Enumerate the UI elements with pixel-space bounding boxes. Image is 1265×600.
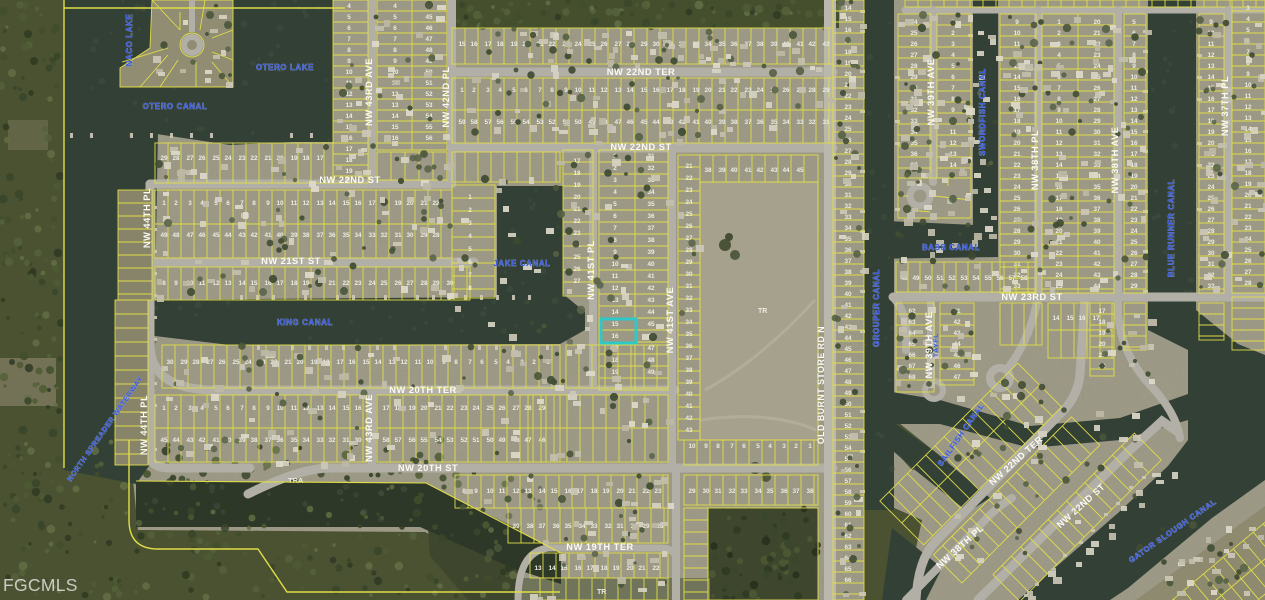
svg-text:8: 8: [468, 285, 472, 292]
svg-text:42: 42: [1093, 261, 1101, 268]
svg-text:44: 44: [224, 232, 232, 239]
svg-text:8: 8: [454, 359, 458, 366]
svg-text:18: 18: [1055, 206, 1063, 213]
svg-text:43: 43: [685, 427, 693, 434]
svg-text:19: 19: [573, 182, 581, 189]
svg-text:16: 16: [348, 359, 356, 366]
svg-text:32: 32: [728, 488, 736, 495]
svg-text:38: 38: [526, 523, 534, 530]
svg-text:8: 8: [252, 200, 256, 207]
svg-text:44: 44: [172, 437, 180, 444]
svg-text:30: 30: [652, 41, 660, 48]
svg-text:31: 31: [1207, 261, 1215, 268]
svg-text:13: 13: [614, 87, 622, 94]
svg-text:1: 1: [162, 405, 166, 412]
svg-text:14: 14: [949, 162, 957, 169]
svg-text:15: 15: [1066, 315, 1074, 322]
svg-text:48: 48: [172, 232, 180, 239]
svg-text:33: 33: [796, 119, 804, 126]
svg-text:39: 39: [718, 167, 726, 174]
svg-text:37: 37: [1093, 206, 1101, 213]
svg-text:54: 54: [844, 445, 852, 452]
svg-text:36: 36: [910, 151, 918, 158]
svg-text:10: 10: [486, 488, 494, 495]
svg-text:NW 38TH PL: NW 38TH PL: [1030, 130, 1040, 190]
svg-text:56: 56: [496, 119, 504, 126]
svg-text:29: 29: [844, 170, 852, 177]
svg-text:11: 11: [1208, 41, 1215, 48]
svg-text:18: 18: [1098, 319, 1106, 326]
svg-text:23: 23: [685, 187, 693, 194]
svg-text:12: 12: [1207, 52, 1215, 59]
svg-text:46: 46: [953, 363, 961, 370]
svg-text:43: 43: [770, 167, 778, 174]
svg-text:NW 22ND TER: NW 22ND TER: [607, 67, 676, 77]
svg-text:14: 14: [1055, 162, 1063, 169]
svg-text:25: 25: [573, 254, 581, 261]
svg-text:NW 43RD AVE: NW 43RD AVE: [364, 58, 374, 126]
svg-text:19: 19: [408, 405, 416, 412]
svg-text:9: 9: [564, 87, 568, 94]
svg-text:33: 33: [740, 488, 748, 495]
svg-text:65: 65: [844, 566, 852, 573]
svg-text:12: 12: [611, 285, 619, 292]
svg-text:35: 35: [564, 523, 572, 530]
svg-text:48: 48: [844, 379, 852, 386]
svg-text:NW 41ST AVE: NW 41ST AVE: [665, 287, 675, 353]
svg-text:28: 28: [432, 232, 440, 239]
svg-text:42: 42: [808, 41, 816, 48]
svg-text:21: 21: [328, 280, 336, 287]
svg-text:53: 53: [536, 119, 544, 126]
svg-text:9: 9: [1209, 19, 1213, 26]
svg-text:39: 39: [647, 249, 655, 256]
svg-text:14: 14: [374, 359, 382, 366]
svg-text:24: 24: [1130, 228, 1138, 235]
svg-text:NW 19TH TER: NW 19TH TER: [566, 542, 633, 552]
svg-text:31: 31: [685, 283, 693, 290]
svg-text:14: 14: [1130, 118, 1138, 125]
svg-text:32: 32: [604, 523, 612, 530]
svg-text:28: 28: [172, 155, 180, 162]
svg-text:10: 10: [426, 359, 434, 366]
svg-text:25: 25: [685, 211, 693, 218]
svg-text:45: 45: [796, 167, 804, 174]
svg-text:46: 46: [198, 232, 206, 239]
svg-text:2: 2: [794, 443, 798, 450]
svg-text:45: 45: [647, 321, 655, 328]
svg-text:16: 16: [1130, 140, 1138, 147]
svg-text:49: 49: [647, 369, 655, 376]
svg-text:35: 35: [718, 41, 726, 48]
svg-text:24: 24: [574, 41, 582, 48]
svg-text:15: 15: [342, 200, 350, 207]
svg-text:17: 17: [316, 155, 324, 162]
svg-text:14: 14: [328, 200, 336, 207]
svg-text:24: 24: [685, 199, 693, 206]
svg-text:17: 17: [666, 87, 674, 94]
svg-text:TR: TR: [597, 589, 606, 596]
svg-text:36: 36: [730, 41, 738, 48]
svg-text:6: 6: [226, 405, 230, 412]
svg-text:28: 28: [1207, 228, 1215, 235]
svg-text:26: 26: [1093, 85, 1101, 92]
svg-text:28: 28: [420, 280, 428, 287]
svg-text:49: 49: [912, 275, 920, 282]
svg-text:24: 24: [224, 155, 232, 162]
svg-text:20: 20: [1207, 140, 1215, 147]
svg-text:37: 37: [685, 355, 693, 362]
svg-text:31: 31: [714, 488, 722, 495]
svg-text:3: 3: [188, 405, 192, 412]
svg-text:12: 12: [949, 140, 957, 147]
svg-text:35: 35: [647, 201, 655, 208]
svg-text:NW 20TH TER: NW 20TH TER: [389, 385, 456, 395]
svg-text:14: 14: [328, 405, 336, 412]
svg-text:55: 55: [420, 437, 428, 444]
svg-text:18: 18: [302, 155, 310, 162]
svg-text:NW 44TH PL: NW 44TH PL: [142, 188, 152, 248]
svg-text:29: 29: [420, 232, 428, 239]
svg-text:34: 34: [354, 232, 362, 239]
svg-text:40: 40: [1093, 239, 1101, 246]
svg-text:59: 59: [458, 119, 466, 126]
svg-text:30: 30: [1013, 250, 1021, 257]
svg-text:13: 13: [316, 405, 324, 412]
svg-text:32: 32: [844, 203, 852, 210]
svg-text:16: 16: [391, 135, 399, 142]
svg-text:29: 29: [1130, 283, 1138, 290]
svg-text:26: 26: [1130, 250, 1138, 257]
svg-text:8: 8: [252, 405, 256, 412]
svg-text:FGCMLS: FGCMLS: [3, 575, 78, 595]
svg-text:5: 5: [1132, 19, 1136, 26]
svg-text:49: 49: [498, 437, 506, 444]
svg-text:38: 38: [844, 269, 852, 276]
svg-text:58: 58: [470, 119, 478, 126]
svg-text:14: 14: [391, 113, 399, 120]
svg-text:2: 2: [174, 200, 178, 207]
svg-text:15: 15: [391, 124, 399, 131]
svg-text:41: 41: [744, 167, 752, 174]
svg-text:21: 21: [628, 488, 636, 495]
svg-text:27: 27: [1130, 261, 1138, 268]
svg-text:23: 23: [654, 488, 662, 495]
svg-text:52: 52: [948, 275, 956, 282]
svg-text:20: 20: [616, 488, 624, 495]
svg-text:17: 17: [1098, 308, 1106, 315]
svg-text:39: 39: [718, 119, 726, 126]
svg-text:55: 55: [425, 124, 433, 131]
svg-text:28: 28: [1130, 272, 1138, 279]
svg-text:16: 16: [470, 41, 478, 48]
svg-text:KING CANAL: KING CANAL: [277, 318, 333, 327]
svg-text:20: 20: [1098, 341, 1106, 348]
svg-text:NW 22ND ST: NW 22ND ST: [319, 175, 380, 185]
svg-text:23: 23: [1244, 225, 1252, 232]
svg-text:14: 14: [1052, 315, 1060, 322]
svg-text:27: 27: [406, 280, 414, 287]
svg-text:16: 16: [354, 200, 362, 207]
svg-text:36: 36: [756, 119, 764, 126]
svg-text:45: 45: [160, 437, 168, 444]
svg-text:41: 41: [212, 437, 220, 444]
svg-text:43: 43: [186, 437, 194, 444]
svg-text:26: 26: [198, 155, 206, 162]
svg-text:17: 17: [336, 359, 344, 366]
svg-text:16: 16: [574, 565, 582, 572]
svg-text:7: 7: [613, 225, 617, 232]
svg-text:36: 36: [780, 488, 788, 495]
svg-text:OLD BURNT STORE RD N: OLD BURNT STORE RD N: [816, 326, 826, 444]
svg-text:14: 14: [538, 488, 546, 495]
svg-text:52: 52: [844, 423, 852, 430]
svg-text:5: 5: [613, 201, 617, 208]
svg-text:19: 19: [510, 41, 518, 48]
svg-text:NW 37TH PL: NW 37TH PL: [1220, 76, 1230, 136]
svg-text:25: 25: [910, 30, 918, 37]
svg-text:19: 19: [612, 565, 620, 572]
svg-text:24: 24: [1013, 184, 1021, 191]
svg-text:30: 30: [406, 232, 414, 239]
svg-text:34: 34: [844, 225, 852, 232]
svg-text:GROUPER CANAL: GROUPER CANAL: [872, 269, 881, 347]
svg-text:52: 52: [460, 437, 468, 444]
svg-text:64: 64: [908, 330, 916, 337]
svg-text:22: 22: [730, 87, 738, 94]
svg-text:7: 7: [951, 85, 955, 92]
svg-text:35: 35: [1093, 184, 1101, 191]
svg-text:37: 37: [538, 523, 546, 530]
svg-text:38: 38: [756, 41, 764, 48]
svg-text:1: 1: [468, 194, 472, 201]
svg-text:8: 8: [550, 87, 554, 94]
svg-text:16: 16: [1078, 315, 1086, 322]
svg-text:26: 26: [218, 359, 226, 366]
svg-text:13: 13: [316, 200, 324, 207]
svg-text:33: 33: [316, 437, 324, 444]
svg-text:41: 41: [1093, 250, 1101, 257]
svg-text:26: 26: [782, 87, 790, 94]
svg-text:8: 8: [347, 47, 351, 54]
svg-text:62: 62: [844, 533, 852, 540]
svg-text:26: 26: [1207, 206, 1215, 213]
svg-text:10: 10: [1130, 74, 1138, 81]
svg-text:53: 53: [960, 275, 968, 282]
svg-text:20: 20: [420, 405, 428, 412]
svg-text:18: 18: [1244, 170, 1252, 177]
svg-text:14: 14: [844, 5, 852, 12]
svg-text:47: 47: [844, 368, 852, 375]
svg-text:44: 44: [647, 309, 655, 316]
svg-text:28: 28: [192, 359, 200, 366]
svg-text:24: 24: [1055, 272, 1063, 279]
svg-text:46: 46: [626, 119, 634, 126]
svg-text:30: 30: [166, 359, 174, 366]
svg-text:20: 20: [1013, 140, 1021, 147]
svg-text:39: 39: [238, 437, 246, 444]
svg-text:6: 6: [347, 25, 351, 32]
svg-text:15: 15: [1013, 85, 1021, 92]
svg-text:7: 7: [730, 443, 734, 450]
svg-text:25: 25: [1130, 239, 1138, 246]
svg-text:8: 8: [716, 443, 720, 450]
svg-text:50: 50: [924, 275, 932, 282]
svg-text:10: 10: [1244, 82, 1252, 89]
svg-text:12: 12: [1244, 104, 1252, 111]
svg-text:18: 18: [678, 87, 686, 94]
svg-text:30: 30: [702, 488, 710, 495]
svg-text:11: 11: [612, 273, 619, 280]
svg-text:20: 20: [1093, 19, 1101, 26]
svg-text:35: 35: [770, 119, 778, 126]
svg-text:42: 42: [844, 313, 852, 320]
svg-text:15: 15: [1130, 129, 1138, 136]
svg-text:34: 34: [754, 488, 762, 495]
svg-text:38: 38: [730, 119, 738, 126]
svg-text:25: 25: [232, 359, 240, 366]
svg-text:53: 53: [446, 437, 454, 444]
svg-text:51: 51: [844, 412, 852, 419]
svg-text:33: 33: [368, 232, 376, 239]
svg-text:5: 5: [494, 359, 498, 366]
svg-text:51: 51: [472, 437, 480, 444]
svg-text:12: 12: [600, 87, 608, 94]
svg-text:31: 31: [1093, 140, 1101, 147]
svg-text:29: 29: [538, 405, 546, 412]
svg-text:40: 40: [730, 167, 738, 174]
svg-text:2: 2: [1057, 30, 1061, 37]
svg-text:7: 7: [393, 36, 397, 43]
svg-text:19: 19: [394, 200, 402, 207]
svg-text:28: 28: [808, 87, 816, 94]
svg-text:32: 32: [328, 437, 336, 444]
svg-text:63: 63: [844, 544, 852, 551]
svg-text:29: 29: [685, 259, 693, 266]
svg-text:NW 22ND ST: NW 22ND ST: [610, 142, 671, 152]
svg-text:17: 17: [1130, 151, 1138, 158]
svg-text:38: 38: [685, 367, 693, 374]
svg-text:44: 44: [652, 119, 660, 126]
svg-text:NW 23RD ST: NW 23RD ST: [1001, 292, 1062, 302]
svg-text:9: 9: [704, 443, 708, 450]
svg-text:39: 39: [844, 280, 852, 287]
svg-text:63: 63: [908, 319, 916, 326]
svg-text:46: 46: [538, 437, 546, 444]
svg-text:23: 23: [1093, 52, 1101, 59]
svg-text:16: 16: [564, 488, 572, 495]
svg-text:7: 7: [1132, 41, 1136, 48]
svg-text:10: 10: [688, 443, 696, 450]
svg-text:BLUE RUNNER CANAL: BLUE RUNNER CANAL: [1167, 179, 1176, 277]
svg-text:39: 39: [1093, 228, 1101, 235]
svg-text:13: 13: [391, 102, 399, 109]
svg-text:24: 24: [472, 405, 480, 412]
svg-text:42: 42: [953, 319, 961, 326]
svg-text:45: 45: [844, 346, 852, 353]
svg-text:16: 16: [1207, 96, 1215, 103]
svg-text:TR: TR: [758, 308, 767, 315]
svg-text:32: 32: [380, 232, 388, 239]
svg-text:1: 1: [460, 87, 464, 94]
svg-text:6: 6: [393, 25, 397, 32]
svg-text:TAYFL: TAYFL: [933, 333, 940, 357]
svg-text:22: 22: [1130, 206, 1138, 213]
svg-text:24: 24: [844, 115, 852, 122]
svg-text:42: 42: [685, 415, 693, 422]
svg-text:JAKE CANAL: JAKE CANAL: [493, 259, 550, 268]
svg-text:31: 31: [844, 192, 852, 199]
svg-text:16: 16: [844, 27, 852, 34]
svg-text:10: 10: [345, 69, 353, 76]
svg-text:17: 17: [368, 200, 376, 207]
svg-text:22: 22: [1244, 214, 1252, 221]
svg-text:35: 35: [342, 232, 350, 239]
svg-text:52: 52: [548, 119, 556, 126]
svg-text:3: 3: [951, 41, 955, 48]
svg-text:34: 34: [685, 319, 693, 326]
svg-text:NW 39TH AVE: NW 39TH AVE: [926, 59, 936, 126]
svg-text:30: 30: [685, 271, 693, 278]
svg-text:43: 43: [238, 232, 246, 239]
svg-text:51: 51: [936, 275, 944, 282]
svg-text:57: 57: [484, 119, 492, 126]
svg-text:33: 33: [844, 214, 852, 221]
svg-text:8: 8: [393, 47, 397, 54]
svg-text:36: 36: [552, 523, 560, 530]
svg-text:11: 11: [291, 405, 298, 412]
svg-text:43: 43: [647, 297, 655, 304]
svg-text:7: 7: [468, 272, 472, 279]
svg-text:23: 23: [573, 230, 581, 237]
svg-text:11: 11: [950, 129, 957, 136]
svg-text:19: 19: [602, 488, 610, 495]
svg-text:30: 30: [1093, 129, 1101, 136]
svg-text:51: 51: [425, 80, 433, 87]
svg-text:9: 9: [174, 280, 178, 287]
svg-text:66: 66: [844, 577, 852, 584]
svg-text:34: 34: [302, 437, 310, 444]
svg-text:27: 27: [910, 52, 918, 59]
svg-text:23: 23: [354, 280, 362, 287]
svg-text:20: 20: [1130, 184, 1138, 191]
svg-text:OTERO CANAL: OTERO CANAL: [143, 102, 208, 111]
svg-text:11: 11: [291, 200, 298, 207]
svg-text:3: 3: [782, 443, 786, 450]
svg-text:20: 20: [1055, 228, 1063, 235]
svg-text:8: 8: [162, 280, 166, 287]
svg-text:26: 26: [910, 41, 918, 48]
svg-text:18: 18: [1013, 118, 1021, 125]
svg-text:32: 32: [685, 295, 693, 302]
svg-text:4: 4: [1246, 16, 1250, 23]
svg-text:26: 26: [498, 405, 506, 412]
svg-text:37: 37: [316, 232, 324, 239]
svg-text:36: 36: [1093, 195, 1101, 202]
svg-text:11: 11: [1056, 129, 1063, 136]
svg-text:12: 12: [512, 488, 520, 495]
svg-text:29: 29: [1013, 239, 1021, 246]
svg-text:14: 14: [548, 565, 556, 572]
svg-text:47: 47: [425, 36, 433, 43]
svg-text:47: 47: [186, 232, 194, 239]
svg-text:3: 3: [1246, 5, 1250, 12]
svg-text:35: 35: [290, 437, 298, 444]
svg-text:58: 58: [844, 489, 852, 496]
svg-text:44: 44: [782, 167, 790, 174]
svg-text:19: 19: [1244, 181, 1252, 188]
svg-text:9: 9: [951, 107, 955, 114]
